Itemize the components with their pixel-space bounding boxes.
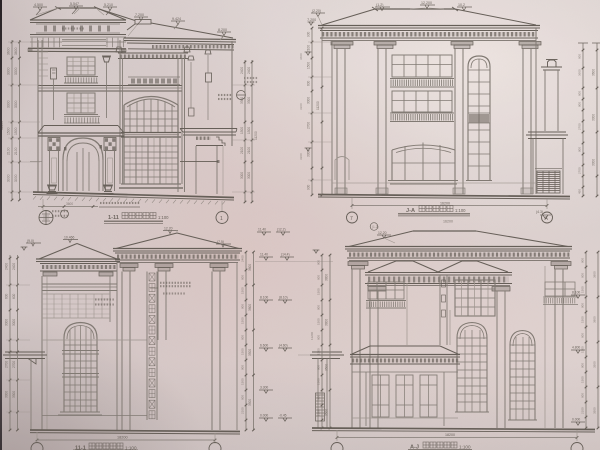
svg-text:11200: 11200	[254, 131, 258, 140]
svg-text:2100: 2100	[240, 147, 244, 154]
svg-text:1500: 1500	[317, 348, 321, 355]
svg-text:3600: 3600	[578, 69, 582, 76]
svg-text:3800: 3800	[325, 274, 329, 281]
svg-text:3600: 3600	[299, 53, 303, 60]
svg-text:3500: 3500	[248, 399, 252, 406]
svg-text:3300: 3300	[12, 391, 16, 398]
svg-text:3600: 3600	[14, 47, 18, 55]
svg-text:900: 900	[317, 365, 321, 370]
svg-text:1500: 1500	[581, 286, 585, 293]
svg-text:16200: 16200	[443, 220, 453, 224]
svg-text:2100: 2100	[14, 147, 18, 155]
svg-text:3500: 3500	[248, 349, 252, 356]
svg-text:5.547: 5.547	[70, 2, 79, 6]
svg-text:11.40: 11.40	[260, 253, 268, 257]
svg-text:2700: 2700	[307, 122, 311, 129]
svg-text:2400: 2400	[12, 263, 16, 270]
svg-text:900: 900	[317, 260, 321, 265]
svg-text:900: 900	[581, 258, 585, 263]
svg-text:900: 900	[241, 365, 245, 370]
svg-text:1500: 1500	[307, 62, 311, 69]
svg-text:3000: 3000	[240, 172, 244, 179]
svg-text:1: 1	[220, 216, 223, 222]
svg-text:2100: 2100	[581, 407, 585, 414]
svg-text:3000: 3000	[307, 97, 311, 104]
svg-text:1500: 1500	[240, 127, 244, 134]
svg-text:600: 600	[307, 80, 311, 86]
svg-text:1500: 1500	[317, 288, 321, 295]
svg-text:2100: 2100	[317, 409, 321, 416]
svg-text:A-J: A-J	[410, 445, 419, 450]
svg-text:(4.60): (4.60)	[279, 344, 288, 348]
svg-text:18200: 18200	[445, 433, 455, 437]
svg-text:18200: 18200	[117, 436, 128, 440]
svg-text:1500: 1500	[241, 317, 245, 324]
svg-text:1500: 1500	[581, 346, 585, 353]
svg-text:900: 900	[581, 303, 585, 308]
svg-text:600: 600	[317, 395, 321, 400]
svg-text:(4.3): (4.3)	[536, 210, 543, 214]
svg-text:8.200: 8.200	[218, 28, 227, 32]
svg-text:1:100: 1:100	[158, 215, 169, 220]
svg-text:600: 600	[578, 91, 582, 96]
svg-text:900: 900	[578, 147, 582, 152]
svg-text:1500: 1500	[317, 378, 321, 385]
svg-text:3300: 3300	[7, 100, 11, 108]
svg-text:3800: 3800	[325, 319, 329, 326]
svg-text:J-A: J-A	[406, 208, 415, 214]
svg-text:600: 600	[241, 395, 245, 400]
svg-text:2700: 2700	[578, 123, 582, 130]
svg-text:1500: 1500	[14, 127, 18, 135]
svg-text:900: 900	[317, 305, 321, 310]
svg-text:600: 600	[317, 335, 321, 340]
svg-text:10.466: 10.466	[64, 236, 74, 240]
svg-text:2100: 2100	[307, 45, 311, 52]
svg-text:3300: 3300	[299, 103, 303, 110]
svg-text:2700: 2700	[12, 361, 16, 368]
svg-text:11200: 11200	[310, 332, 314, 340]
svg-text:10.2: 10.2	[458, 3, 465, 7]
svg-text:12.20: 12.20	[378, 231, 387, 235]
svg-text:4.800: 4.800	[572, 346, 580, 350]
svg-text:1500: 1500	[7, 127, 11, 135]
svg-text:7.200: 7.200	[135, 13, 144, 17]
svg-text:1500: 1500	[241, 348, 245, 355]
svg-text:3000: 3000	[12, 319, 16, 326]
svg-text:2100: 2100	[247, 147, 251, 154]
svg-text:2400: 2400	[5, 263, 9, 270]
svg-text:1500: 1500	[241, 287, 245, 294]
svg-text:3300: 3300	[14, 67, 18, 75]
svg-text:3300: 3300	[5, 391, 9, 398]
svg-text:3300: 3300	[240, 97, 244, 104]
svg-text:(2.20): (2.20)	[312, 9, 321, 13]
svg-text:1500: 1500	[247, 127, 251, 134]
svg-text:3800: 3800	[593, 316, 597, 323]
svg-text:3000: 3000	[5, 319, 9, 326]
svg-text:12.20: 12.20	[164, 227, 173, 231]
svg-text:3300: 3300	[14, 100, 18, 108]
svg-text:3600: 3600	[592, 69, 596, 76]
svg-text:6.600: 6.600	[260, 344, 268, 348]
svg-text:3800: 3800	[248, 304, 252, 311]
svg-text:600: 600	[241, 275, 245, 280]
svg-text:1:100: 1:100	[125, 446, 137, 450]
svg-text:(7.5): (7.5)	[217, 240, 224, 244]
svg-text:600: 600	[317, 275, 321, 280]
svg-text:3800: 3800	[248, 264, 252, 271]
svg-text:8.100: 8.100	[260, 296, 268, 300]
svg-text:3300: 3300	[247, 97, 251, 104]
svg-text:3000: 3000	[247, 172, 251, 179]
svg-text:3.300: 3.300	[260, 386, 268, 390]
svg-text:2400: 2400	[240, 67, 244, 74]
svg-text:12.200: 12.200	[421, 1, 432, 5]
svg-text:600: 600	[581, 273, 585, 278]
svg-text:3600: 3600	[66, 202, 73, 206]
svg-text:1500: 1500	[581, 316, 585, 323]
svg-text:7: 7	[350, 216, 353, 222]
svg-text:16200: 16200	[440, 202, 450, 206]
svg-text:3800: 3800	[593, 271, 597, 278]
svg-text:9.424: 9.424	[172, 17, 181, 21]
svg-text:3600: 3600	[7, 47, 11, 55]
svg-text:600: 600	[241, 335, 245, 340]
svg-text:900: 900	[241, 304, 245, 309]
svg-text:1500: 1500	[241, 378, 245, 385]
svg-text:(12.2): (12.2)	[277, 228, 286, 232]
svg-text:600: 600	[581, 333, 585, 338]
svg-text:3500: 3500	[593, 407, 597, 414]
svg-text:(9.0): (9.0)	[27, 239, 34, 243]
svg-text:11200: 11200	[316, 101, 320, 110]
svg-text:600: 600	[5, 293, 9, 299]
svg-text:2400: 2400	[247, 67, 251, 74]
svg-text:1-11: 1-11	[108, 215, 119, 221]
svg-text:3500: 3500	[325, 409, 329, 416]
svg-text:3000: 3000	[7, 174, 11, 182]
svg-text:450: 450	[578, 189, 582, 194]
svg-text:2700: 2700	[578, 167, 582, 174]
svg-text:1:100: 1:100	[459, 445, 471, 450]
svg-text:1:100: 1:100	[455, 208, 466, 213]
svg-text:5.210: 5.210	[104, 3, 113, 7]
svg-text:(1.2): (1.2)	[376, 3, 383, 7]
svg-text:0.000: 0.000	[260, 414, 268, 418]
svg-text:600: 600	[12, 293, 16, 299]
svg-text:2100: 2100	[7, 147, 11, 155]
svg-text:3300: 3300	[299, 153, 303, 160]
svg-text:11.40: 11.40	[258, 228, 266, 232]
svg-text:900: 900	[307, 31, 311, 37]
svg-text:3300: 3300	[592, 159, 596, 166]
svg-text:900: 900	[581, 363, 585, 368]
svg-text:(8.10): (8.10)	[279, 296, 288, 300]
svg-text:600: 600	[581, 393, 585, 398]
svg-text:3500: 3500	[325, 364, 329, 371]
svg-text:-0.45: -0.45	[279, 414, 287, 418]
svg-text:3500: 3500	[593, 361, 597, 368]
svg-text:2100: 2100	[241, 407, 245, 414]
svg-text:3300: 3300	[7, 67, 11, 75]
svg-text:(14.4): (14.4)	[281, 253, 290, 257]
svg-text:900: 900	[307, 184, 311, 190]
svg-text:1500: 1500	[581, 376, 585, 383]
svg-text:4.500: 4.500	[34, 3, 43, 7]
svg-text:8.100: 8.100	[572, 291, 580, 295]
svg-text:0.000: 0.000	[572, 418, 580, 422]
svg-text:1500: 1500	[317, 318, 321, 325]
svg-text:3300: 3300	[592, 114, 596, 121]
svg-text:11-1: 11-1	[75, 446, 86, 450]
svg-text:2700: 2700	[5, 361, 9, 368]
svg-text:7.200: 7.200	[307, 18, 316, 22]
svg-text:2400: 2400	[241, 255, 245, 262]
svg-text:600: 600	[578, 54, 582, 59]
svg-text:900: 900	[578, 102, 582, 107]
svg-text:3000: 3000	[14, 174, 18, 182]
